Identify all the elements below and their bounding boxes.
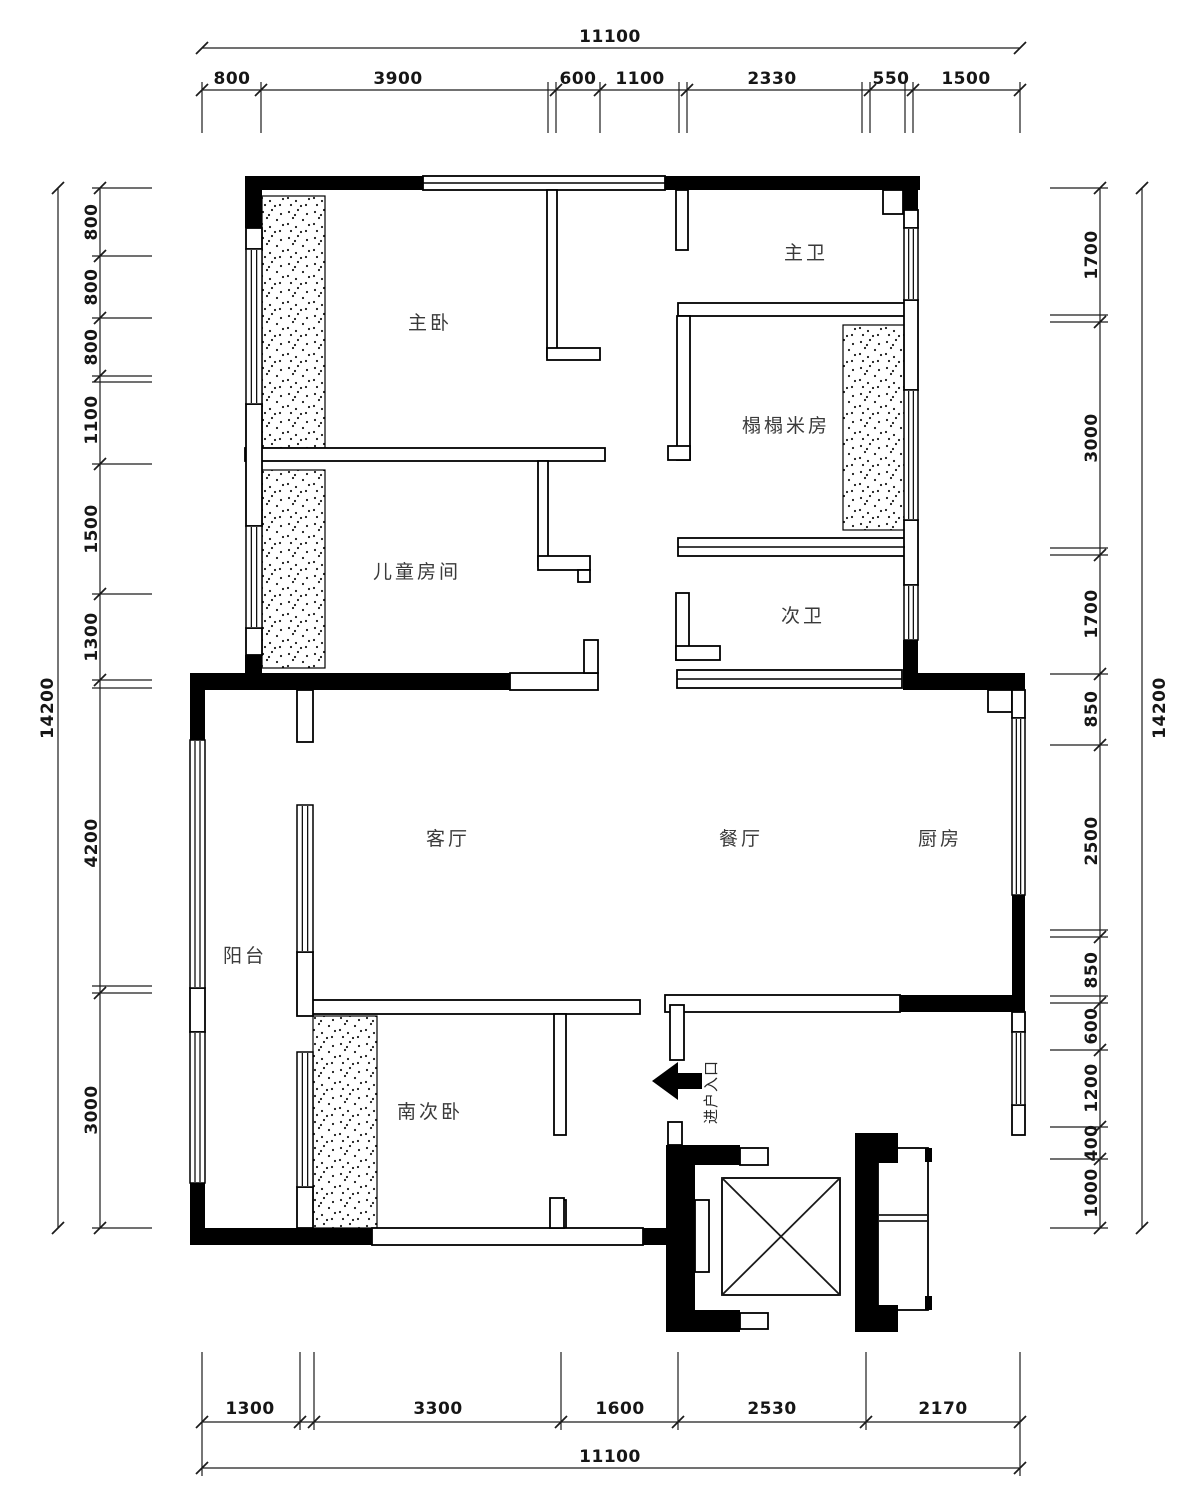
floor-plan-page: 进户入口 主卧 主卫 榻榻米房 儿童房间 次卫 客厅 餐厅 厨房 阳台 南次卧 … [0,0,1200,1504]
dim-top-seg: 800 [214,69,251,89]
wall-segment-outline [988,690,1012,712]
wall-segment-outline [297,952,313,1016]
dim-left-seg: 800 [82,329,102,366]
wall-segment-outline [695,1200,709,1272]
dim-bottom-seg: 1300 [225,1399,274,1419]
wall-segment [666,1145,740,1165]
dim-top-seg: 550 [873,69,910,89]
hatch-area [843,325,905,530]
dim-right-seg: 3000 [1082,413,1102,462]
wall-segment [190,1228,372,1245]
wall-segment [855,1305,898,1332]
dim-right-seg: 850 [1082,952,1102,989]
dim-bottom-seg: 3300 [413,1399,462,1419]
floor-plan-drawing: 进户入口 主卧 主卫 榻榻米房 儿童房间 次卫 客厅 餐厅 厨房 阳台 南次卧 … [0,0,1200,1504]
wall-segment [900,995,1025,1012]
wall-segment-outline [538,461,548,566]
hatch-area [262,196,325,448]
wall-segment-outline [310,1000,640,1014]
dim-left-seg: 1500 [82,504,102,553]
room-label-tatami-room: 榻榻米房 [742,415,830,437]
wall-segment [925,1148,932,1162]
wall-segment [1012,895,1025,1012]
wall-segment-outline [554,1014,566,1135]
wall-segment-outline [297,690,313,742]
window [904,390,918,520]
window [904,585,918,640]
dim-top-total: 11100 [579,27,641,47]
wall-segment-outline [1012,1105,1025,1135]
wall-segment [245,176,423,190]
wall-segment-outline [883,190,903,214]
dim-bottom-seg: 1600 [595,1399,644,1419]
dim-top-seg: 1100 [615,69,664,89]
dim-left-seg: 1300 [82,612,102,661]
dim-left-seg: 1100 [82,395,102,444]
entry-arrow-icon [652,1062,702,1100]
wall-segment [903,673,1025,690]
wall-segment-outline [190,988,205,1032]
dim-right-seg: 850 [1082,691,1102,728]
window [297,1052,313,1187]
dim-bottom-total: 11100 [579,1447,641,1467]
wall-segment-outline [372,1228,643,1245]
wall-segment-outline [547,348,600,360]
entry-marker: 进户入口 [652,1060,720,1124]
dim-right-seg: 1700 [1082,230,1102,279]
room-label-master-bath: 主卫 [784,242,828,264]
window [297,805,313,952]
window [1012,1032,1025,1105]
dim-right-seg: 600 [1082,1008,1102,1045]
room-label-dining-room: 餐厅 [719,828,763,850]
dim-right-seg: 1000 [1082,1168,1102,1217]
wall-segment-outline [740,1148,768,1165]
wall-segment [190,673,510,690]
dim-top-seg: 3900 [373,69,422,89]
wall-segment-outline [245,448,605,461]
room-label-living-room: 客厅 [426,828,470,850]
wall-segment [925,1296,932,1310]
dim-right-seg: 1200 [1082,1063,1102,1112]
wall-segment-outline [584,640,598,673]
wall-segment-outline [550,1198,564,1228]
dimension-lines [52,42,1148,1476]
hatch-area [262,470,325,668]
dim-top-seg: 2330 [747,69,796,89]
window [904,228,918,300]
wall-segment-outline [578,570,590,582]
wall-segment-outline [668,446,690,460]
room-label-second-bath: 次卫 [781,605,825,627]
dim-right-seg: 2500 [1082,816,1102,865]
dim-top-seg: 600 [560,69,597,89]
room-label-balcony: 阳台 [223,945,267,967]
wall-segment-outline [740,1313,768,1329]
wall-segment-outline [538,556,590,570]
room-label-kitchen: 厨房 [918,828,962,850]
dim-right-seg: 1700 [1082,589,1102,638]
dim-right-seg: 400 [1082,1125,1102,1162]
wall-segment-outline [904,300,918,390]
window [190,1032,205,1183]
wall-segment-outline [676,646,720,660]
wall-segment-outline [670,1005,684,1060]
dim-left-seg: 4200 [82,818,102,867]
dim-bottom-seg: 2170 [918,1399,967,1419]
wall-segment-outline [1012,690,1025,718]
wall-segment-outline [677,316,690,460]
wall-segment-outline [1012,1012,1025,1032]
room-label-south-bedroom: 南次卧 [397,1101,463,1123]
wall-segment-outline [668,1122,682,1145]
wall-segment [245,176,262,228]
window [246,249,262,404]
wall-segment-outline [246,228,262,249]
dim-left-seg: 800 [82,269,102,306]
wall-segment-outline [246,404,262,526]
wall-segment-outline [246,628,262,655]
wall-segment-outline [547,190,557,357]
dimension-labels: 11100 800 3900 600 1100 2330 550 1500 13… [38,27,1170,1467]
dim-left-total: 14200 [38,677,58,739]
wall-detail-lines [423,183,905,679]
dim-bottom-seg: 2530 [747,1399,796,1419]
dim-left-seg: 3000 [82,1085,102,1134]
wall-segment [666,1145,695,1332]
window [246,526,262,628]
window [190,740,205,988]
wall-segment-outline [878,1148,928,1310]
entry-label: 进户入口 [702,1060,720,1124]
wall-segment [903,176,918,210]
wall-segment-outline [678,303,905,316]
hatch-area [313,1016,377,1228]
wall-segment [665,176,920,190]
wall-segment-outline [297,1187,313,1228]
wall-segment-outline [676,190,688,250]
room-label-children-room: 儿童房间 [373,561,461,583]
wall-segment [855,1133,898,1163]
wall-segment-outline [665,995,900,1012]
wall-segment-outline [904,520,918,585]
window [1012,718,1025,895]
dim-right-total: 14200 [1150,677,1170,739]
wall-segment [666,1310,740,1332]
wall-segment [190,673,205,740]
dim-top-seg: 1500 [941,69,990,89]
wall-segment-outline [904,210,918,228]
room-label-master-bedroom: 主卧 [408,312,452,334]
wall-segment-outline [510,673,598,690]
dim-left-seg: 800 [82,204,102,241]
